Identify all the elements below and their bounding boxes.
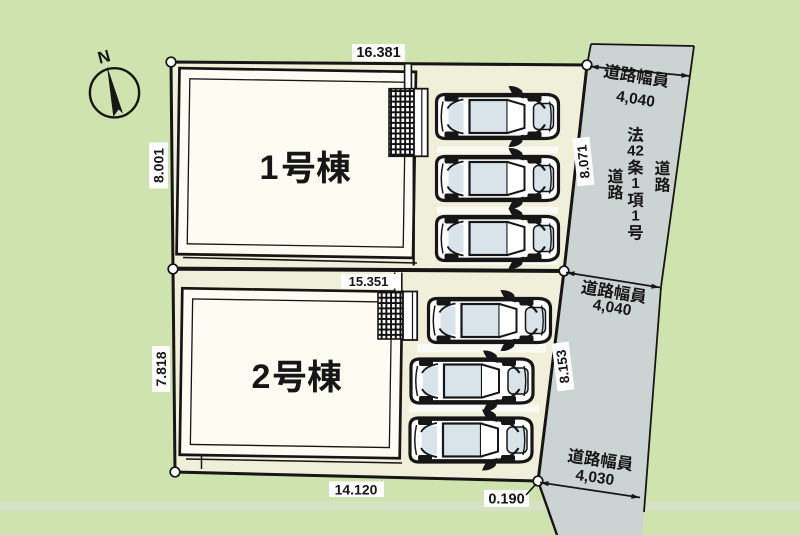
svg-text:1: 1 — [631, 175, 639, 192]
svg-text:14.120: 14.120 — [335, 481, 378, 497]
svg-text:1: 1 — [260, 149, 279, 187]
svg-text:1: 1 — [631, 208, 639, 225]
svg-text:0.190: 0.190 — [488, 492, 524, 508]
svg-text:15.351: 15.351 — [349, 274, 389, 289]
svg-text:8.001: 8.001 — [151, 148, 167, 183]
svg-text:2: 2 — [252, 358, 271, 396]
svg-text:7.818: 7.818 — [153, 351, 169, 386]
svg-text:42: 42 — [627, 142, 644, 159]
svg-text:16.381: 16.381 — [356, 45, 400, 61]
